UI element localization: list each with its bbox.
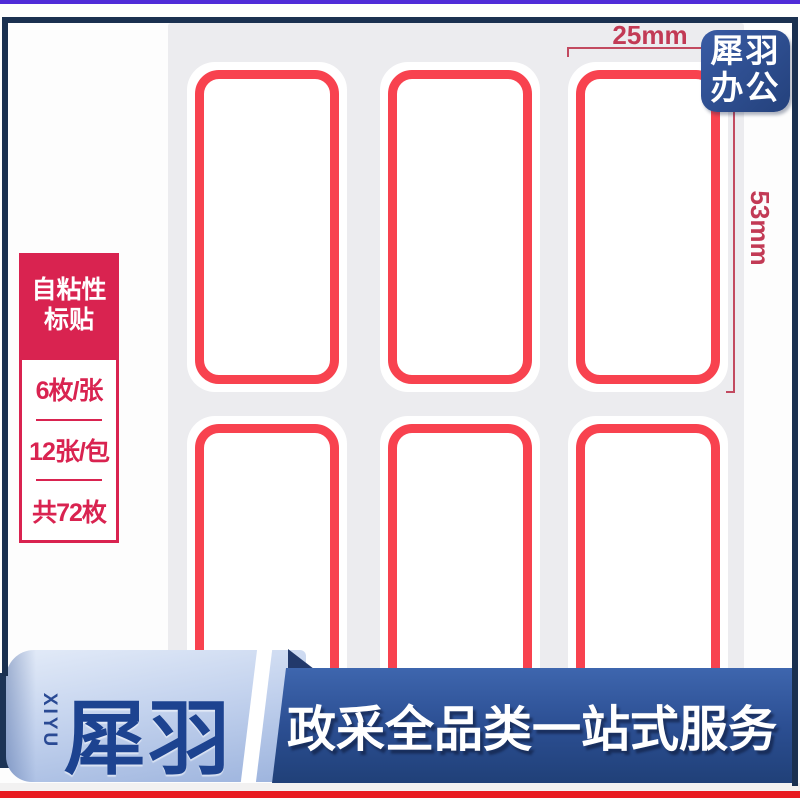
label-sticker-border — [576, 70, 720, 384]
spec-box-title-line2: 标贴 — [44, 305, 94, 335]
spec-divider — [36, 419, 102, 421]
spec-box-header: 自粘性 标贴 — [19, 253, 119, 357]
brand-badge-line1: 犀羽 — [711, 34, 781, 71]
spec-sheets-per-pack: 12张/包 — [29, 432, 109, 468]
frame-bottom-gray-strip — [0, 783, 800, 791]
brand-badge-line2: 办公 — [711, 71, 781, 108]
frame-top-purple-line — [0, 0, 800, 4]
height-dimension-tick — [726, 391, 735, 393]
slogan-text: 政采全品类一站式服务 — [287, 690, 777, 761]
label-sticker — [380, 62, 540, 392]
frame-navy-left — [2, 17, 8, 676]
frame-bottom-red-line — [0, 791, 800, 798]
label-sticker-border — [195, 70, 339, 384]
spec-box-body: 6枚/张 12张/包 共72枚 — [19, 357, 119, 543]
ribbon-shading — [6, 650, 36, 782]
product-spec-box: 自粘性 标贴 6枚/张 12张/包 共72枚 — [19, 253, 119, 543]
label-sticker — [568, 62, 728, 392]
width-dimension-tick — [567, 47, 569, 57]
brand-name: 犀羽 — [64, 672, 239, 791]
frame-navy-right — [792, 17, 798, 786]
spec-labels-per-sheet: 6枚/张 — [36, 371, 103, 407]
frame-navy-top — [2, 17, 798, 23]
height-dimension-label: 53mm — [744, 183, 775, 273]
height-dimension-line — [733, 112, 735, 393]
label-sticker — [187, 62, 347, 392]
label-sticker-border — [388, 70, 532, 384]
spec-box-title-line1: 自粘性 — [31, 275, 106, 305]
brand-name-vertical: XIYU — [36, 686, 60, 756]
spec-total-labels: 共72枚 — [32, 493, 106, 529]
slogan-banner: 政采全品类一站式服务 — [272, 668, 792, 783]
brand-badge: 犀羽 办公 — [701, 30, 790, 112]
spec-divider — [36, 479, 102, 481]
